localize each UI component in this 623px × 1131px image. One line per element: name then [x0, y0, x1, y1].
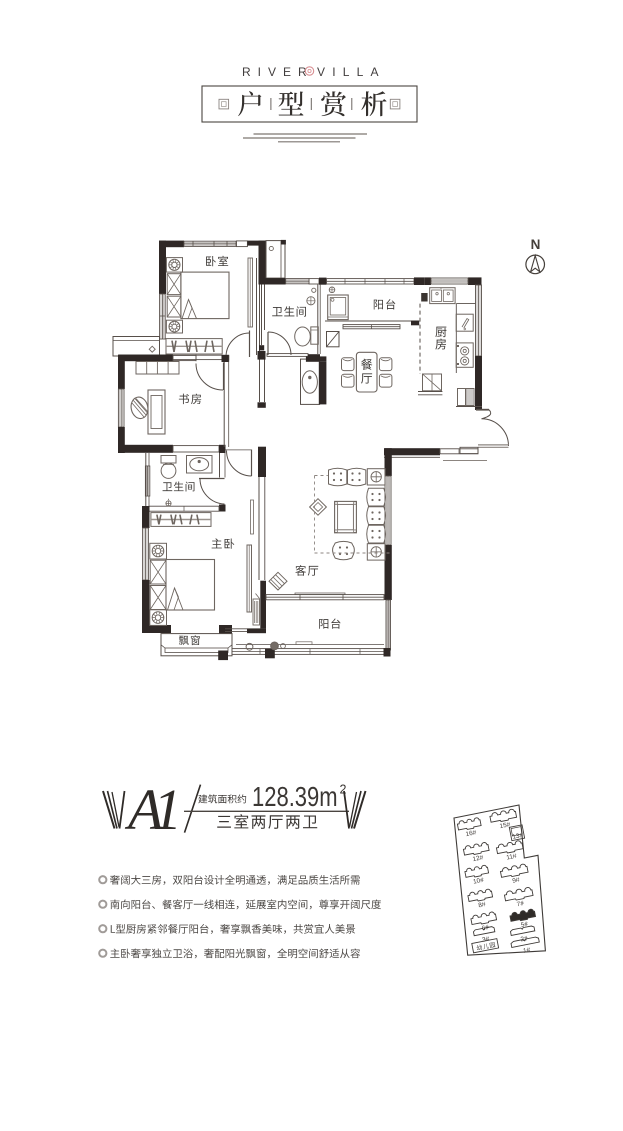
svg-text:11#: 11#	[506, 853, 518, 862]
svg-text:2: 2	[340, 783, 347, 797]
svg-text:8#: 8#	[478, 901, 487, 909]
svg-text:12#: 12#	[472, 854, 484, 863]
svg-text:7#: 7#	[516, 900, 525, 908]
svg-text:1#: 1#	[523, 947, 532, 955]
svg-text:A1: A1	[124, 777, 182, 842]
svg-text:128.39m: 128.39m	[252, 782, 338, 813]
svg-text:2#: 2#	[520, 935, 529, 943]
svg-text:9#: 9#	[512, 877, 521, 885]
svg-text:N: N	[531, 237, 541, 252]
svg-text:RIVER: RIVER	[242, 65, 314, 79]
svg-text:16#: 16#	[465, 829, 477, 838]
svg-text:10#: 10#	[473, 877, 485, 886]
svg-text:VILLA: VILLA	[317, 65, 386, 79]
